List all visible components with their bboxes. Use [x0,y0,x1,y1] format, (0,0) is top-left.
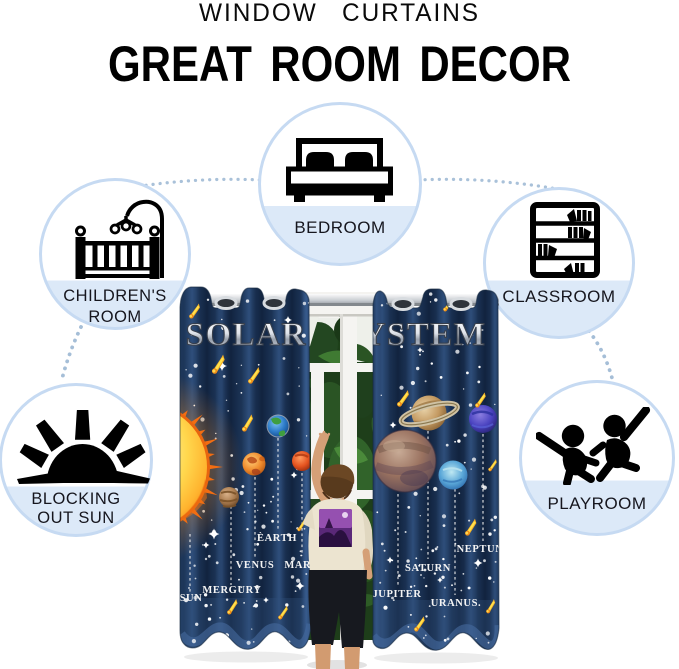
svg-text:URANUS.: URANUS. [431,598,482,609]
svg-text:SATURN: SATURN [405,563,451,574]
svg-text:NEPTUŃ: NEPTUŃ [457,543,504,555]
svg-text:SUN: SUN [180,593,203,604]
svg-text:VENUS: VENUS [236,560,275,571]
svg-text:ÈARTH: ÈARTH [257,532,297,544]
svg-text:MERGURY: MERGURY [202,585,261,596]
svg-text:YSTEM: YSTEM [362,317,487,353]
svg-text:JUPITER: JUPITER [372,589,421,600]
